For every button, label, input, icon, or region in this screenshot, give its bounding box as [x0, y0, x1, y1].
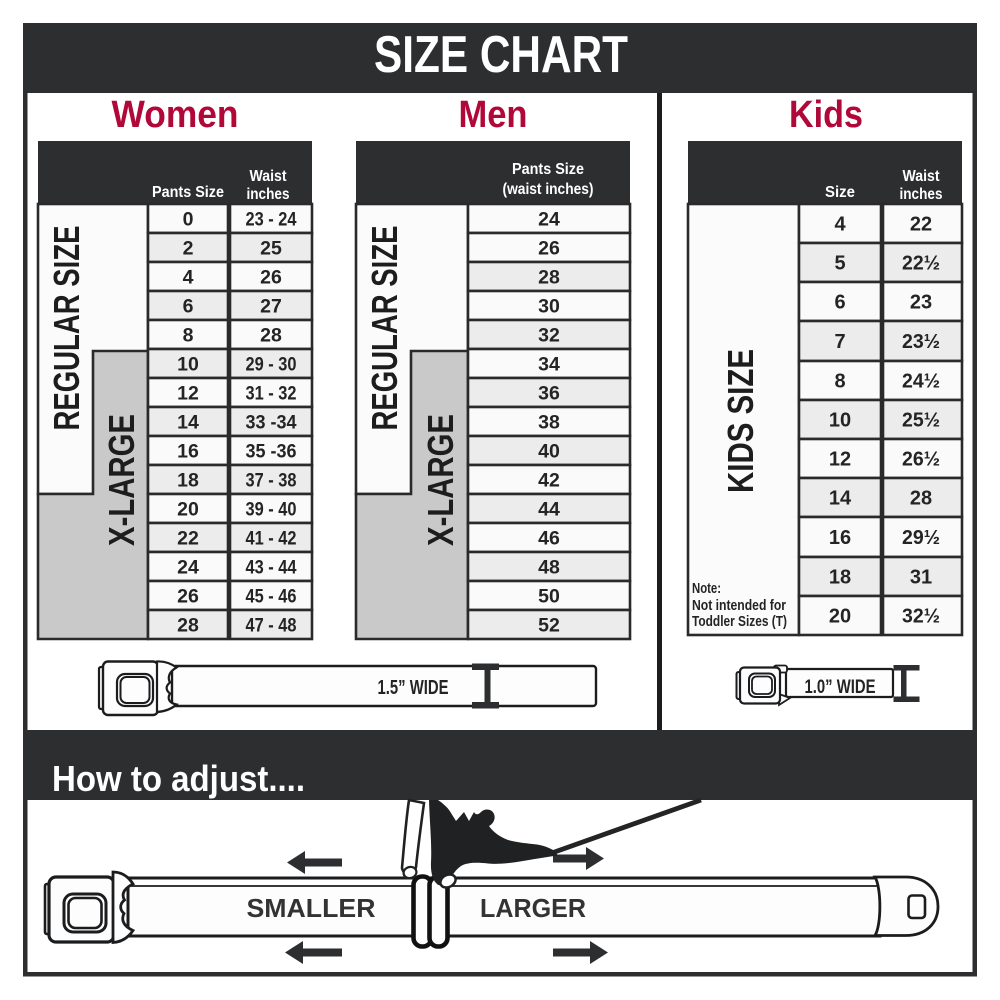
- svg-text:X-LARGE: X-LARGE: [420, 414, 461, 546]
- svg-text:48: 48: [538, 557, 560, 579]
- svg-text:SIZE CHART: SIZE CHART: [374, 26, 628, 84]
- svg-text:8: 8: [183, 325, 194, 347]
- svg-text:6: 6: [183, 296, 194, 318]
- svg-text:37 - 38: 37 - 38: [246, 470, 297, 492]
- svg-text:SMALLER: SMALLER: [247, 895, 376, 923]
- svg-text:10: 10: [177, 354, 199, 376]
- svg-text:8: 8: [834, 371, 845, 393]
- svg-text:34: 34: [538, 354, 560, 376]
- svg-text:38: 38: [538, 412, 560, 434]
- svg-text:REGULAR SIZE: REGULAR SIZE: [364, 226, 405, 431]
- svg-text:20: 20: [177, 499, 199, 521]
- svg-text:26: 26: [260, 267, 282, 289]
- svg-text:0: 0: [183, 209, 194, 231]
- svg-text:(waist inches): (waist inches): [503, 181, 594, 198]
- svg-text:12: 12: [829, 449, 851, 471]
- svg-text:24½: 24½: [902, 371, 940, 393]
- svg-text:KIDS SIZE: KIDS SIZE: [720, 349, 761, 493]
- svg-text:26: 26: [177, 586, 199, 608]
- svg-text:16: 16: [829, 527, 851, 549]
- svg-text:2: 2: [183, 238, 194, 260]
- svg-text:50: 50: [538, 586, 560, 608]
- svg-text:32: 32: [538, 325, 560, 347]
- svg-text:14: 14: [829, 488, 852, 510]
- svg-text:1.5” WIDE: 1.5” WIDE: [378, 677, 449, 699]
- svg-text:35 -36: 35 -36: [246, 441, 297, 463]
- svg-text:24: 24: [538, 209, 560, 231]
- svg-text:4: 4: [183, 267, 194, 289]
- svg-text:52: 52: [538, 615, 560, 637]
- svg-text:28: 28: [538, 267, 560, 289]
- svg-text:Waist: Waist: [903, 168, 940, 185]
- svg-text:28: 28: [260, 325, 282, 347]
- svg-text:31: 31: [910, 567, 932, 589]
- svg-text:46: 46: [538, 528, 560, 550]
- svg-text:33 -34: 33 -34: [246, 412, 297, 434]
- svg-text:16: 16: [177, 441, 199, 463]
- svg-text:12: 12: [177, 383, 199, 405]
- svg-text:inches: inches: [247, 186, 290, 203]
- svg-text:REGULAR SIZE: REGULAR SIZE: [46, 226, 87, 431]
- svg-text:25: 25: [260, 238, 282, 260]
- svg-text:29 - 30: 29 - 30: [246, 354, 297, 376]
- svg-text:29½: 29½: [902, 527, 940, 549]
- svg-text:24: 24: [177, 557, 199, 579]
- svg-text:10: 10: [829, 410, 851, 432]
- svg-text:22: 22: [910, 214, 932, 236]
- svg-text:45 - 46: 45 - 46: [246, 586, 297, 608]
- svg-text:31 - 32: 31 - 32: [246, 383, 297, 405]
- svg-text:Size: Size: [825, 184, 855, 201]
- svg-text:23 - 24: 23 - 24: [246, 209, 297, 231]
- svg-text:Note:: Note:: [692, 580, 721, 597]
- svg-text:26: 26: [538, 238, 560, 260]
- svg-text:41 - 42: 41 - 42: [246, 528, 297, 550]
- svg-text:Women: Women: [112, 94, 239, 136]
- svg-text:25½: 25½: [902, 410, 940, 432]
- svg-text:36: 36: [538, 383, 560, 405]
- svg-text:Pants Size: Pants Size: [152, 184, 224, 201]
- svg-text:23: 23: [910, 292, 932, 314]
- svg-text:4: 4: [834, 214, 846, 236]
- svg-text:47 - 48: 47 - 48: [246, 615, 297, 637]
- svg-text:1.0” WIDE: 1.0” WIDE: [805, 676, 876, 698]
- svg-text:14: 14: [177, 412, 199, 434]
- svg-text:28: 28: [177, 615, 199, 637]
- svg-text:18: 18: [177, 470, 199, 492]
- svg-text:7: 7: [834, 331, 845, 353]
- svg-text:23½: 23½: [902, 331, 940, 353]
- svg-text:26½: 26½: [902, 449, 940, 471]
- svg-text:32½: 32½: [902, 606, 940, 628]
- svg-text:X-LARGE: X-LARGE: [101, 414, 142, 546]
- svg-text:How to adjust....: How to adjust....: [52, 758, 305, 799]
- svg-text:6: 6: [834, 292, 845, 314]
- svg-text:43 - 44: 43 - 44: [246, 557, 297, 579]
- svg-text:18: 18: [829, 567, 851, 589]
- svg-text:40: 40: [538, 441, 560, 463]
- svg-text:Toddler Sizes (T): Toddler Sizes (T): [692, 613, 787, 630]
- svg-text:Waist: Waist: [250, 168, 287, 185]
- svg-text:5: 5: [834, 253, 845, 275]
- svg-text:22½: 22½: [902, 253, 940, 275]
- svg-text:Kids: Kids: [789, 94, 863, 136]
- svg-text:Men: Men: [459, 94, 528, 136]
- svg-text:20: 20: [829, 606, 851, 628]
- svg-text:inches: inches: [900, 186, 943, 203]
- svg-text:42: 42: [538, 470, 560, 492]
- svg-text:30: 30: [538, 296, 560, 318]
- svg-text:22: 22: [177, 528, 199, 550]
- svg-text:27: 27: [260, 296, 282, 318]
- svg-text:39 - 40: 39 - 40: [246, 499, 297, 521]
- svg-text:28: 28: [910, 488, 932, 510]
- svg-text:44: 44: [538, 499, 560, 521]
- svg-text:Not intended for: Not intended for: [692, 597, 786, 614]
- svg-text:Pants Size: Pants Size: [512, 161, 584, 178]
- svg-text:LARGER: LARGER: [480, 895, 586, 923]
